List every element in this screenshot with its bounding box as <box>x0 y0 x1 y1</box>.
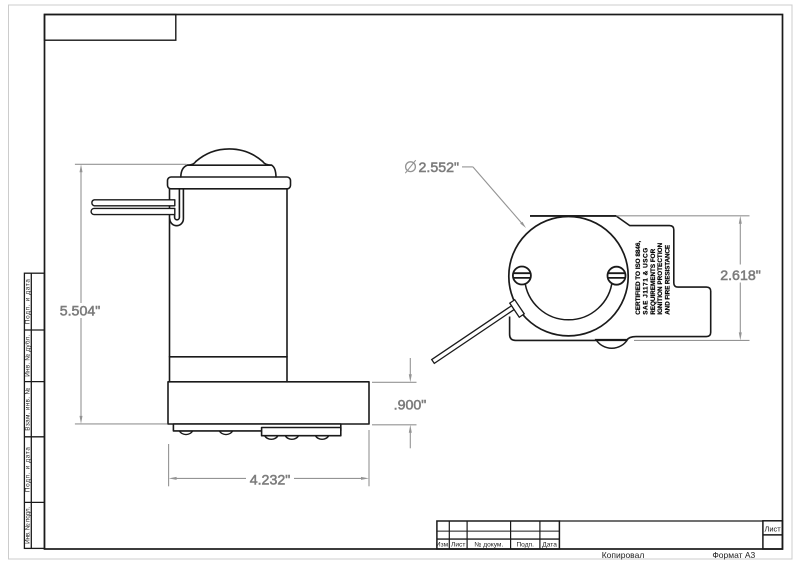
svg-text:Подп. и дата: Подп. и дата <box>24 279 31 324</box>
svg-text:Копировал: Копировал <box>602 550 645 560</box>
svg-text:Изм.: Изм. <box>436 542 450 549</box>
svg-text:Дата: Дата <box>542 542 557 549</box>
svg-text:Взам. инв. №: Взам. инв. № <box>24 388 31 431</box>
svg-text:Инв. № дубл.: Инв. № дубл. <box>23 335 31 377</box>
svg-text:Инв. № подл.: Инв. № подл. <box>24 507 31 544</box>
svg-text:IGNITION PROTECTION: IGNITION PROTECTION <box>657 242 664 314</box>
svg-text:№ докум.: № докум. <box>474 542 503 549</box>
svg-text:SAE J1171 & USCG: SAE J1171 & USCG <box>643 248 650 315</box>
svg-text:AND FIRE RESISTANCE: AND FIRE RESISTANCE <box>665 244 672 315</box>
svg-text:4.232": 4.232" <box>250 472 291 488</box>
svg-text:2.552": 2.552" <box>419 160 460 176</box>
svg-text:Лист: Лист <box>764 524 781 533</box>
svg-text:.900": .900" <box>394 398 427 414</box>
svg-text:CERTIFIED TO ISO 8846,: CERTIFIED TO ISO 8846, <box>635 241 642 315</box>
svg-text:2.618": 2.618" <box>720 268 761 284</box>
svg-text:Лист: Лист <box>451 542 465 549</box>
svg-text:5.504": 5.504" <box>60 304 101 320</box>
svg-text:REQUIREMENTS FOR: REQUIREMENTS FOR <box>650 248 657 314</box>
svg-text:Подп.: Подп. <box>516 542 534 549</box>
svg-text:Подп. и дата: Подп. и дата <box>24 447 31 492</box>
svg-text:Формат А3: Формат А3 <box>712 550 755 560</box>
